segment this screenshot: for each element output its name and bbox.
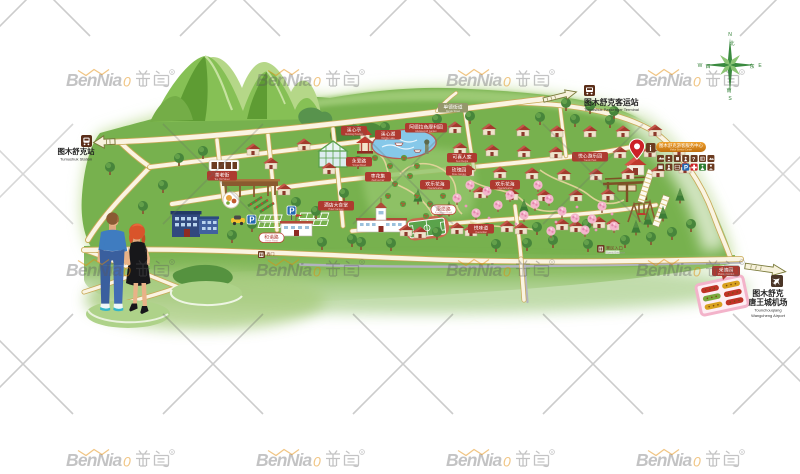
svg-text:Huanlehuahai: Huanlehuahai — [428, 187, 443, 190]
svg-text:Tounchouqiang: Tounchouqiang — [754, 308, 781, 313]
svg-text:W: W — [698, 63, 703, 69]
svg-text:Hotel Canteen: Hotel Canteen — [328, 208, 344, 211]
svg-text:唐王城机场: 唐王城机场 — [749, 297, 788, 307]
svg-text:Xixinhu Lake: Xixinhu Lake — [381, 137, 395, 140]
svg-text:东: 东 — [749, 63, 754, 70]
svg-text:Yuexin Park: Yuexin Park — [584, 159, 598, 162]
svg-text:西门: 西门 — [267, 251, 275, 257]
svg-text:Wangcheng Airport: Wangcheng Airport — [751, 313, 786, 318]
svg-text:图木舒克: 图木舒克 — [752, 288, 783, 298]
svg-text:P: P — [289, 207, 295, 216]
svg-text:Yueweidao: Yueweidao — [475, 231, 487, 234]
svg-text:Yongai Road: Yongai Road — [352, 164, 366, 167]
svg-text:Kexi Renjia: Kexi Renjia — [456, 160, 469, 163]
svg-text:N: N — [728, 32, 732, 38]
svg-text:Hexie Road: Hexie Road — [265, 240, 278, 243]
svg-text:Tumushuk Passenger Terminal: Tumushuk Passenger Terminal — [584, 107, 639, 112]
svg-text:Xixinting Pavilion: Xixinting Pavilion — [345, 133, 364, 136]
svg-text:?: ? — [692, 157, 695, 163]
svg-text:图木舒克站: 图木舒克站 — [58, 147, 96, 156]
svg-text:西: 西 — [705, 64, 710, 70]
svg-text:Zaohua Fair: Zaohua Fair — [372, 179, 385, 182]
svg-text:i: i — [649, 144, 651, 153]
svg-text:P: P — [684, 166, 688, 172]
svg-text:北: 北 — [729, 40, 734, 47]
svg-text:南: 南 — [726, 87, 731, 94]
svg-text:图木舒克游客服务中心: 图木舒克游客服务中心 — [659, 142, 704, 149]
svg-text:图木舒克客运站: 图木舒克客运站 — [584, 97, 639, 107]
svg-text:P: P — [249, 216, 255, 225]
svg-text:Scenic Entrance: Scenic Entrance — [606, 250, 625, 254]
svg-text:Rose Garden: Rose Garden — [452, 173, 467, 176]
svg-text:Dande Street: Dande Street — [446, 110, 460, 113]
svg-text:Huanlehuahai: Huanlehuahai — [498, 187, 513, 190]
svg-text:Tumushuk Station: Tumushuk Station — [60, 157, 92, 162]
svg-text:Visitor Service Center: Visitor Service Center — [670, 149, 692, 152]
svg-text:Adelasemoli Garden: Adelasemoli Garden — [415, 130, 437, 133]
